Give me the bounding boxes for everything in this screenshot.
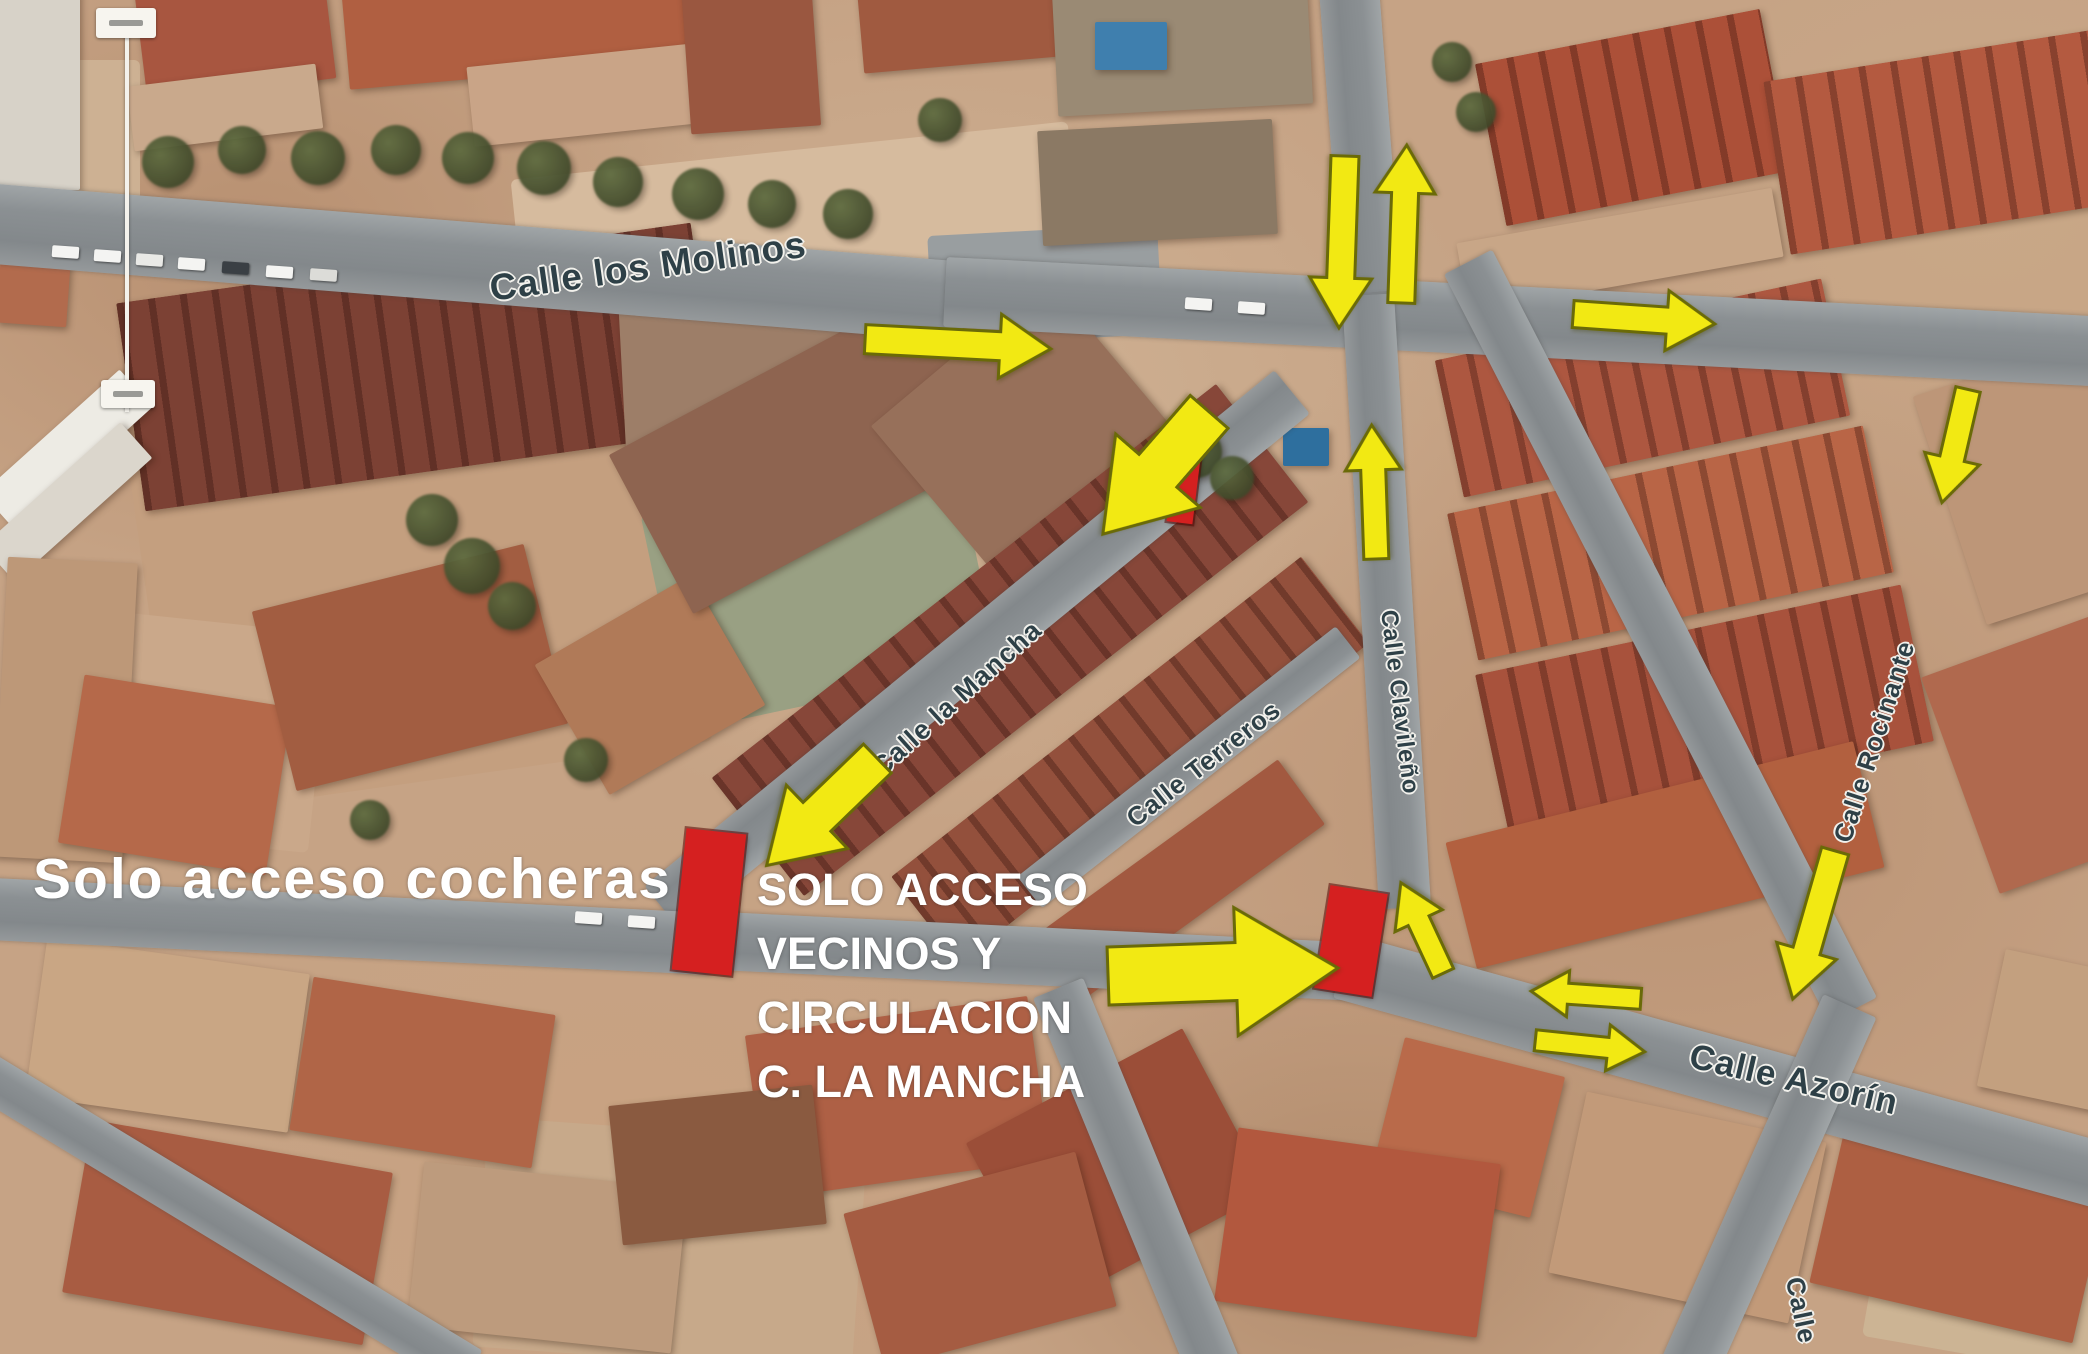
arrow-rocinante-down <box>1915 383 1996 509</box>
annotation-line: CIRCULACION <box>757 986 1088 1050</box>
annotation-solo-acceso-vecinos: SOLO ACCESOVECINOS YCIRCULACIONC. LA MAN… <box>757 858 1088 1114</box>
arrow-glyph <box>1915 383 1996 509</box>
arrow-clavileno-up <box>1344 424 1405 560</box>
annotation-solo-acceso-cocheras: Solo acceso cocheras <box>33 846 672 912</box>
satellite-map: Calle los MolinosCalle la ManchaCalle Te… <box>0 0 2088 1354</box>
arrow-molinos-west-right <box>863 307 1052 381</box>
arrow-azorin-down <box>1763 842 1865 1007</box>
arrow-mancha-junction-downleft <box>1061 375 1252 571</box>
arrow-glyph <box>1763 842 1865 1007</box>
arrow-junction-up <box>1371 144 1436 304</box>
arrow-glyph <box>1308 155 1376 329</box>
annotation-line: SOLO ACCESO <box>757 858 1088 922</box>
arrow-azorin-west <box>1530 968 1643 1022</box>
arrow-glyph <box>1533 1017 1647 1074</box>
arrow-glyph <box>1371 144 1436 304</box>
arrow-glyph <box>1344 424 1405 560</box>
arrow-glyph <box>1571 284 1717 354</box>
arrow-glyph <box>863 307 1052 381</box>
annotation-line: VECINOS Y <box>757 922 1088 986</box>
arrow-junction-turn-upleft <box>1377 872 1466 985</box>
arrow-central-main-right <box>1106 904 1340 1040</box>
arrow-glyph <box>1106 904 1340 1040</box>
arrow-azorin-east <box>1533 1017 1647 1074</box>
arrow-glyph <box>1061 375 1252 571</box>
arrow-molinos-east-right <box>1571 284 1717 354</box>
arrow-glyph <box>1377 872 1466 985</box>
arrow-junction-down <box>1308 155 1376 329</box>
annotation-line: C. LA MANCHA <box>757 1050 1088 1114</box>
arrow-glyph <box>1530 968 1643 1022</box>
traffic-arrows-layer <box>0 0 2088 1354</box>
